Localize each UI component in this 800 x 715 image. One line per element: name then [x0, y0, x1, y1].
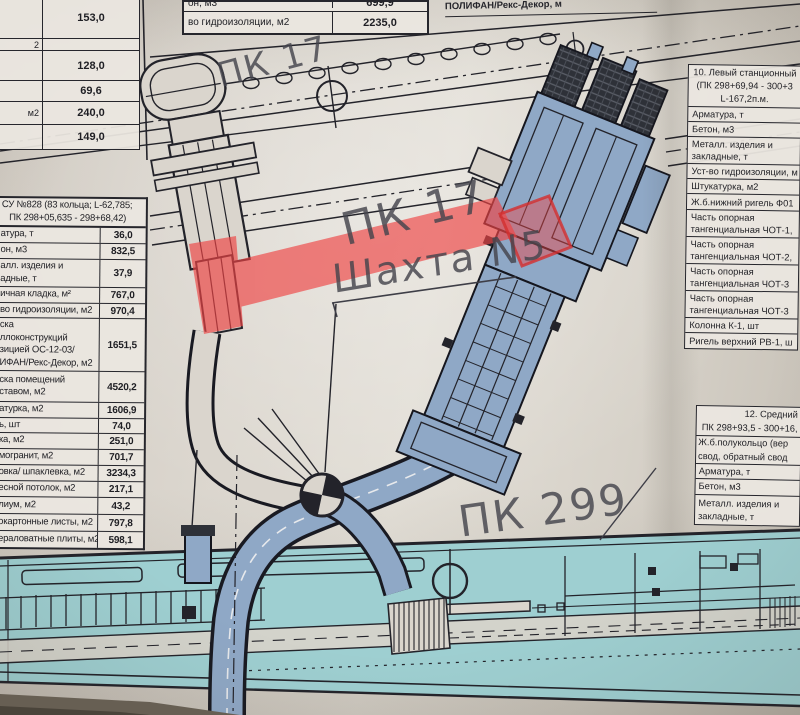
table-row: 128,0	[0, 51, 139, 81]
row-label: 2	[0, 40, 42, 50]
table-row: могранит, м2701,7	[0, 449, 144, 466]
row-label: Уст-во гидроизоляции, м	[690, 165, 799, 179]
table-row: 153,0	[0, 0, 139, 39]
row-label: Часть опорная тангенциальная ЧОТ-1,	[690, 211, 799, 237]
row-label: алл. изделия и адные, т	[0, 260, 99, 286]
row-value: 74,0	[98, 419, 144, 433]
row-label: м2	[0, 108, 42, 118]
row-label: Часть опорная тангенциальная ЧОТ-3	[689, 265, 798, 291]
row-label: Часть опорная тангенциальная ЧОТ-2,	[689, 238, 798, 264]
row-value: 1651,5	[98, 319, 144, 371]
table-row: Ригель верхний РВ-1, ш	[685, 333, 797, 350]
row-label: ичная кладка, м²	[0, 288, 99, 301]
row-label: Арматура, т	[691, 108, 800, 122]
row-value: 767,0	[99, 288, 145, 303]
table-row: 69,6	[0, 81, 139, 102]
row-label: Металл. изделия и закладные, т	[691, 138, 800, 164]
row-value: 2235,0	[332, 12, 427, 33]
table-row: Колонна К-1, шт	[685, 318, 797, 335]
table-row: атурка, м21606,9	[0, 402, 144, 419]
middle-station-tunnel-table: 12. Средний ПК 298+93,5 - 300+16, Ж.б.по…	[694, 405, 800, 527]
table-row: 149,0	[0, 125, 139, 149]
table-row: ска помещений ставом, м24520,2	[0, 371, 144, 403]
row-label: Металл. изделия и закладные, т	[697, 497, 799, 524]
row-label: Арматура, т	[698, 465, 800, 479]
row-value: 970,4	[99, 304, 145, 318]
table-row: во гидроизоляции, м2 2235,0	[184, 12, 427, 33]
table-row: Бетон, м3	[695, 479, 799, 497]
row-label: есной потолок, м2	[0, 482, 97, 495]
table-row: ь, шт74,0	[0, 418, 144, 434]
row-value	[42, 39, 139, 50]
row-value: 149,0	[42, 125, 139, 149]
row-label: ераловатные плиты, м2	[0, 533, 97, 546]
row-label: атурка, м2	[0, 403, 98, 416]
table-row: Металл. изделия и закладные, т	[688, 137, 800, 166]
row-value: 153,0	[42, 0, 139, 38]
table-row: Ж.б.нижний ригель Ф01	[687, 194, 799, 212]
table-row: ска ллоконструкций зицией ОС-12-03/ ИФАН…	[0, 318, 145, 372]
table-row: ка, м2251,0	[0, 433, 144, 450]
row-label: ка, м2	[0, 434, 98, 447]
row-value: 43,2	[97, 498, 143, 514]
row-label: овка/ шпаклевка, м2	[0, 466, 98, 479]
row-value: 3234,3	[98, 466, 144, 481]
table-row: 2	[0, 39, 139, 51]
table-row: овка/ шпаклевка, м23234,3	[0, 465, 144, 482]
row-label: Ж.б.нижний ригель Ф01	[690, 196, 799, 210]
row-label: во гидроизоляции, м2	[184, 17, 332, 28]
row-value: 699,9	[332, 2, 427, 8]
row-label: окартонные листы, м2	[0, 516, 97, 529]
row-label: ь, шт	[0, 419, 98, 432]
row-label: он, м3	[184, 2, 332, 9]
row-label: Бетон, м3	[697, 480, 799, 494]
left-station-tunnel-table: 10. Левый станционный (ПК 298+69,94 - 30…	[684, 64, 800, 351]
row-value: 37,9	[99, 260, 145, 287]
row-value: 240,0	[42, 102, 139, 124]
row-value: 251,0	[98, 434, 144, 449]
table-row: он, м3832,5	[0, 243, 146, 260]
shaft-su828-quantities-table: СУ №828 (83 кольца; L-62,785; ПК 298+05,…	[0, 196, 148, 550]
row-value: 832,5	[99, 244, 145, 259]
table-row: Бетон, м3	[688, 122, 800, 139]
table-row: алл. изделия и адные, т37,9	[0, 259, 145, 288]
table-row: Арматура, т	[688, 107, 800, 124]
table-row: Уст-во гидроизоляции, м	[687, 164, 799, 181]
table-title: СУ №828 (83 кольца; L-62,785; ПК 298+05,…	[0, 198, 146, 228]
table-row: Металл. изделия и закладные, т	[695, 495, 799, 526]
row-value: 69,6	[42, 81, 139, 101]
row-value: 36,0	[100, 228, 146, 243]
row-label: Штукатурка, м2	[690, 180, 799, 194]
table-row: во гидроизоляции, м2970,4	[0, 303, 145, 319]
table-title: 12. Средний ПК 298+93,5 - 300+16,	[696, 406, 800, 438]
row-value: 217,1	[97, 482, 143, 497]
row-label: Часть опорная тангенциальная ЧОТ-3	[688, 292, 797, 318]
row-label: он, м3	[0, 244, 100, 257]
row-label: Колонна К-1, шт	[688, 319, 797, 333]
table-row: ераловатные плиты, м2598,1	[0, 531, 143, 548]
table-row: ичная кладка, м²767,0	[0, 287, 145, 304]
row-value: 1606,9	[98, 403, 144, 418]
table-title: 10. Левый станционный (ПК 298+69,94 - 30…	[688, 65, 800, 109]
table-row: атура, т36,0	[0, 227, 146, 244]
row-value: 128,0	[42, 51, 139, 80]
table-row: м2 240,0	[0, 102, 139, 125]
row-label: ска помещений ставом, м2	[0, 373, 98, 399]
row-label: лиум, м2	[0, 499, 97, 512]
row-value: 701,7	[98, 450, 144, 465]
row-label: ска ллоконструкций зицией ОС-12-03/ ИФАН…	[0, 319, 99, 370]
table-row: Часть опорная тангенциальная ЧОТ-3	[686, 264, 798, 293]
table-row: лиум, м243,2	[0, 497, 143, 515]
table-subtitle: Ж.б.полукольцо (вер свод, обратный свод	[696, 436, 800, 466]
row-value: 4520,2	[98, 372, 144, 402]
row-value: 598,1	[97, 532, 143, 548]
row-label: Ригель верхний РВ-1, ш	[688, 335, 797, 349]
table-row: Штукатурка, м2	[687, 179, 799, 196]
table-row: окартонные листы, м2797,8	[0, 514, 143, 532]
row-label: атура, т	[0, 228, 100, 241]
top-left-quantities-table: 153,0 2 128,0 69,6 м2 240,0 149,0	[0, 0, 140, 150]
table-row: Часть опорная тангенциальная ЧОТ-2,	[686, 237, 798, 266]
row-label: могранит, м2	[0, 450, 98, 463]
table-row: Часть опорная тангенциальная ЧОТ-1,	[687, 210, 799, 239]
table-row: он, м3 699,9	[184, 2, 427, 12]
table-row: Часть опорная тангенциальная ЧОТ-3	[685, 291, 797, 320]
table-row: есной потолок, м2217,1	[0, 481, 144, 498]
row-label: во гидроизоляции, м2	[0, 304, 99, 317]
row-label: Бетон, м3	[691, 123, 800, 137]
top-middle-quantities-table: он, м3 699,9 во гидроизоляции, м2 2235,0	[182, 0, 429, 35]
row-value: 797,8	[97, 515, 143, 531]
